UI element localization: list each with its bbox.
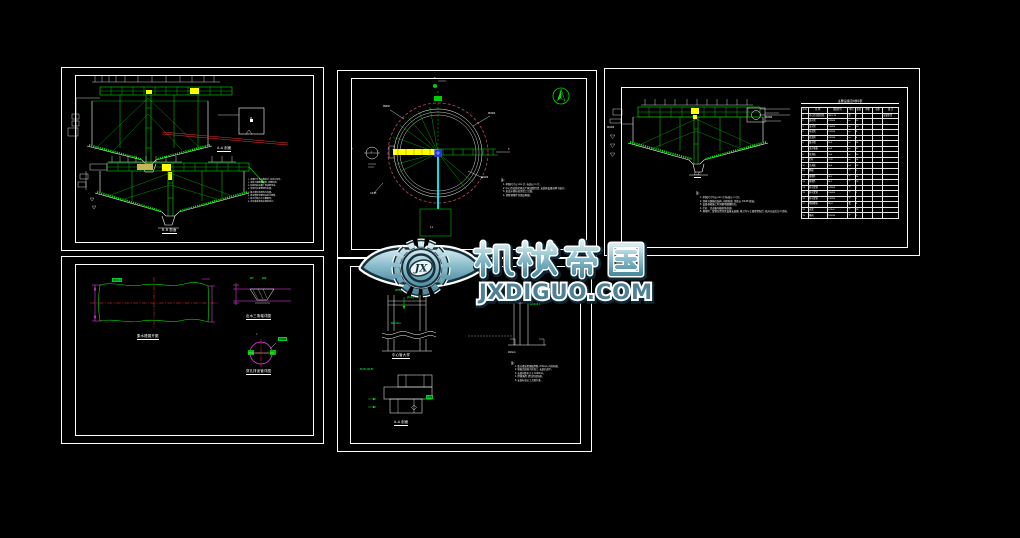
brand-characters (476, 242, 642, 278)
panel-trough-details: 650×4 集水槽展开图 90° 200 出水三角堰详图 DN80 = 穿孔排泥… (61, 256, 324, 444)
section-b-title: B-B 剖面 (162, 229, 177, 234)
dim-row-tags: 50 50 120 50 (360, 369, 373, 371)
detail-drawings-canvas (62, 257, 325, 445)
sludge-pipe-line (162, 132, 288, 145)
weir-angle-tag: 90° (250, 278, 254, 281)
pipe-title: 穿孔排泥管详图 (246, 370, 271, 375)
cad-preview-canvas: { "watermark": { "logo_monogram": "JX", … (0, 0, 1020, 538)
logo-monogram: JX (413, 264, 429, 275)
walkway-highlight (137, 164, 153, 170)
section-marker-left (364, 147, 380, 167)
plan-notes: 1. 本图尺寸以 mm 计, 标高以 m 计。2. 中心传动刮泥机由厂家成套供货… (503, 183, 587, 197)
material-table-title: 主要设备及材料表 (801, 98, 899, 104)
svg-text:JXDIGUO.COM: JXDIGUO.COM (477, 280, 653, 304)
section-notes: 1. 本图尺寸均以毫米计, 标高以米计。2. 池体为钢筋砼结构, 内壁防腐。3.… (248, 179, 312, 204)
cut-label-top: F (434, 77, 436, 81)
anchor-section-title: A-A 剖面 (394, 421, 408, 426)
section-c-notes: 1. 本图尺寸均以 mm 计(标高以 m 计)。2. 池体为钢筋砼结构, 内壁防… (700, 196, 810, 214)
section-c-drawing (610, 99, 790, 175)
notes-heading: 注: (501, 178, 504, 182)
cut-label-right: T (508, 148, 510, 152)
green-dim: 600 mm (391, 323, 401, 326)
material-table-body: 1中心传动刮泥机ZBG-18台1成套供货2进水管DN500m123出水管DN40… (802, 113, 899, 218)
weir-detail-drawing (233, 283, 291, 305)
eq-mark: = (256, 334, 257, 337)
north-arrow-icon (553, 88, 569, 104)
cut-label-left: T (351, 148, 353, 152)
section-c-title: C-C (694, 173, 701, 178)
notes-heading: 注: (696, 191, 699, 195)
center-bridge (389, 146, 510, 158)
panel-sections-left: A-A 剖面 B-B 剖面 M 1. 本图尺寸均以毫米计, 标高以米计。2. 池… (61, 67, 324, 251)
section-a-title: A-A 剖面 (217, 147, 231, 152)
drain-pipe-label: 400mm (508, 352, 516, 355)
notes-heading: 注: (511, 361, 514, 365)
dim-label: i=0.05 (370, 193, 376, 196)
plate-tag: 650×4 (112, 278, 122, 282)
section-drawings-canvas (62, 68, 325, 252)
section-mark: 1 (371, 151, 372, 154)
pump-box-label: M (250, 118, 252, 121)
material-table: 序号名 称规格型号单位数量单重总重备 注 1中心传动刮泥机ZBG-18台1成套供… (801, 107, 899, 219)
center-pipe-title: 中心管大样 (392, 354, 410, 359)
drive-unit-highlight (190, 88, 199, 94)
watermark: JX JXDIGUO.COM JXDIGUO.COM JXDIGUO.COM (350, 218, 666, 314)
trough-plate-drawing (90, 277, 218, 328)
plate-title: 集水槽展开图 (137, 335, 159, 340)
section-b-drawing (78, 156, 264, 228)
pipe-detail-drawing (247, 339, 276, 367)
weir-height-tag: 200 (262, 278, 266, 281)
dim-label: DN500 (765, 117, 772, 120)
dim-label: DN200 (481, 177, 488, 180)
dim-label: DN500 (488, 113, 495, 116)
weir-title: 出水三角堰详图 (246, 315, 271, 320)
dim-label: DN200 (607, 127, 614, 130)
pipe-tag: DN80 (278, 337, 287, 341)
material-table-wrap: 序号名 称规格型号单位数量单重总重备 注 1中心传动刮泥机ZBG-18台1成套供… (801, 107, 899, 219)
concrete-tag: C20 (426, 395, 433, 399)
anchor-section-detail (368, 375, 432, 413)
section-a-drawing (68, 76, 288, 172)
install-notes: 1. 集水槽采用钢板焊制, δ=6mm, 内外防腐。2. 堰板齿形按大样加工, … (515, 366, 589, 383)
table-row: 19闸阀DN200个2 (802, 213, 899, 219)
dim-label: R9000 (383, 106, 390, 109)
brand-domain: JXDIGUO.COM JXDIGUO.COM JXDIGUO.COM (477, 280, 654, 306)
